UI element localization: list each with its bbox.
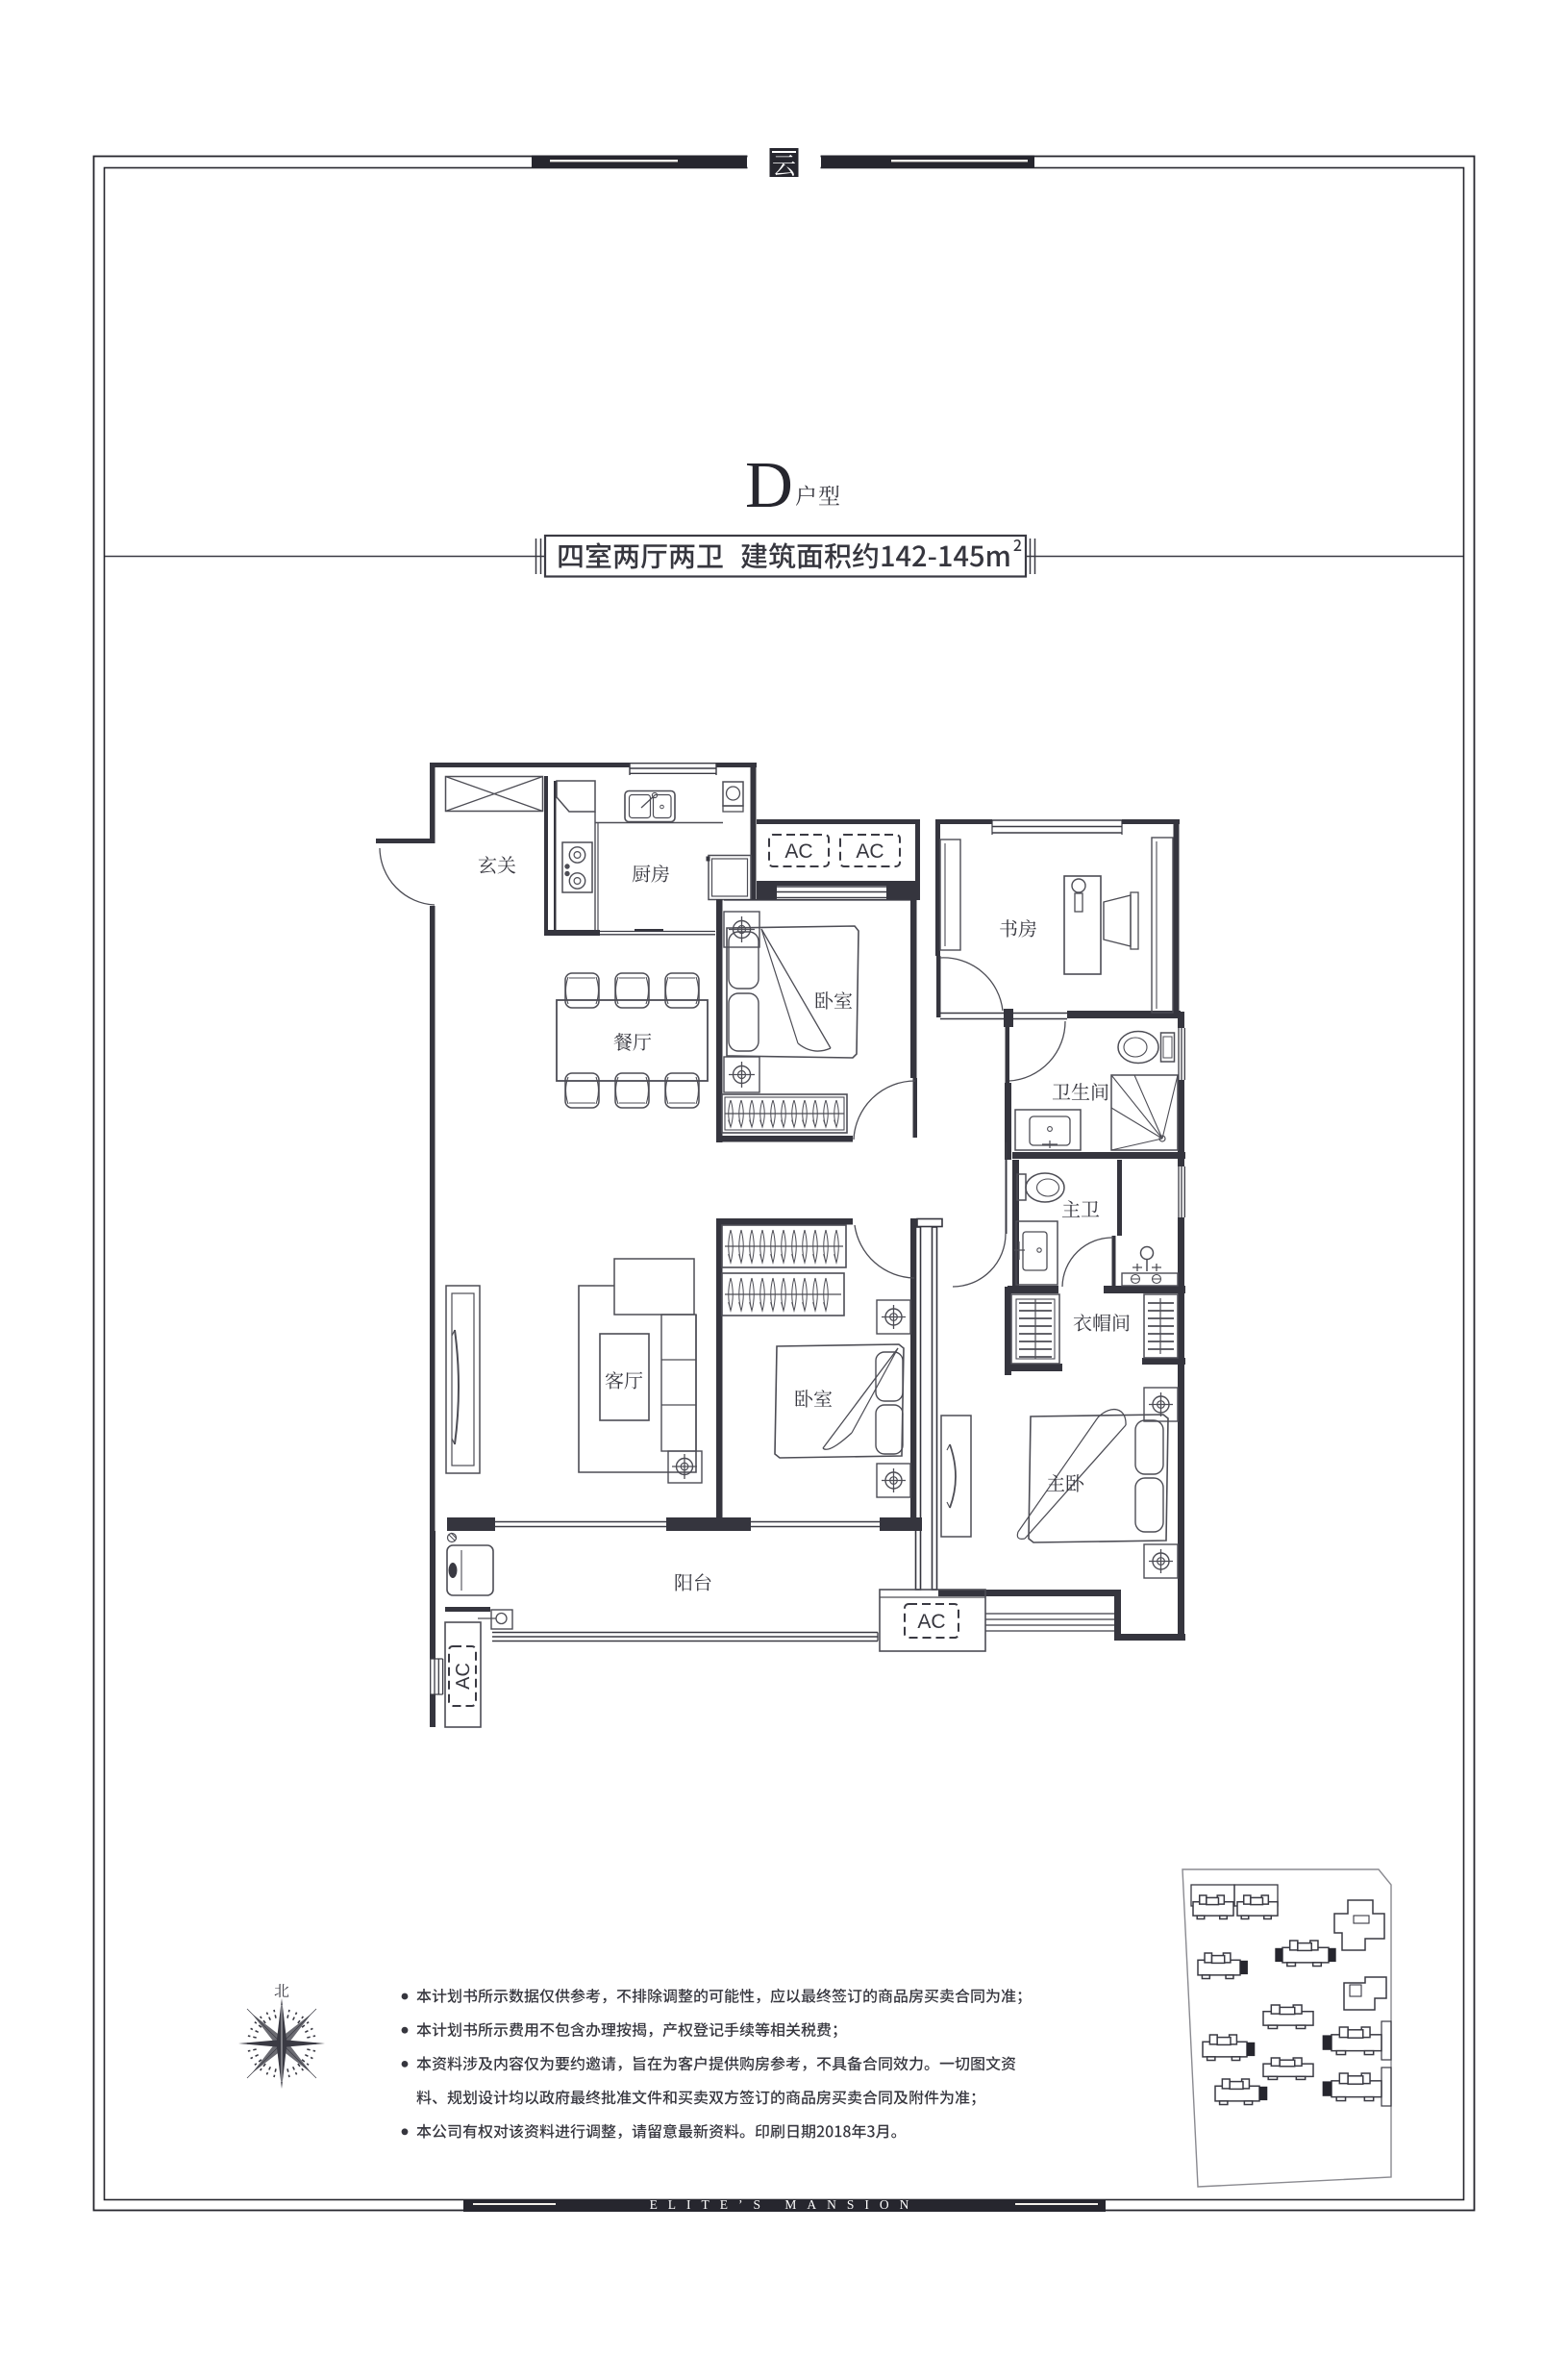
svg-text:AC: AC [784, 840, 812, 863]
svg-text:ELITE’S MANSION: ELITE’S MANSION [650, 2197, 920, 2212]
svg-text:AC: AC [917, 1611, 945, 1633]
svg-text:D: D [745, 448, 793, 521]
svg-text:AC: AC [856, 840, 884, 863]
